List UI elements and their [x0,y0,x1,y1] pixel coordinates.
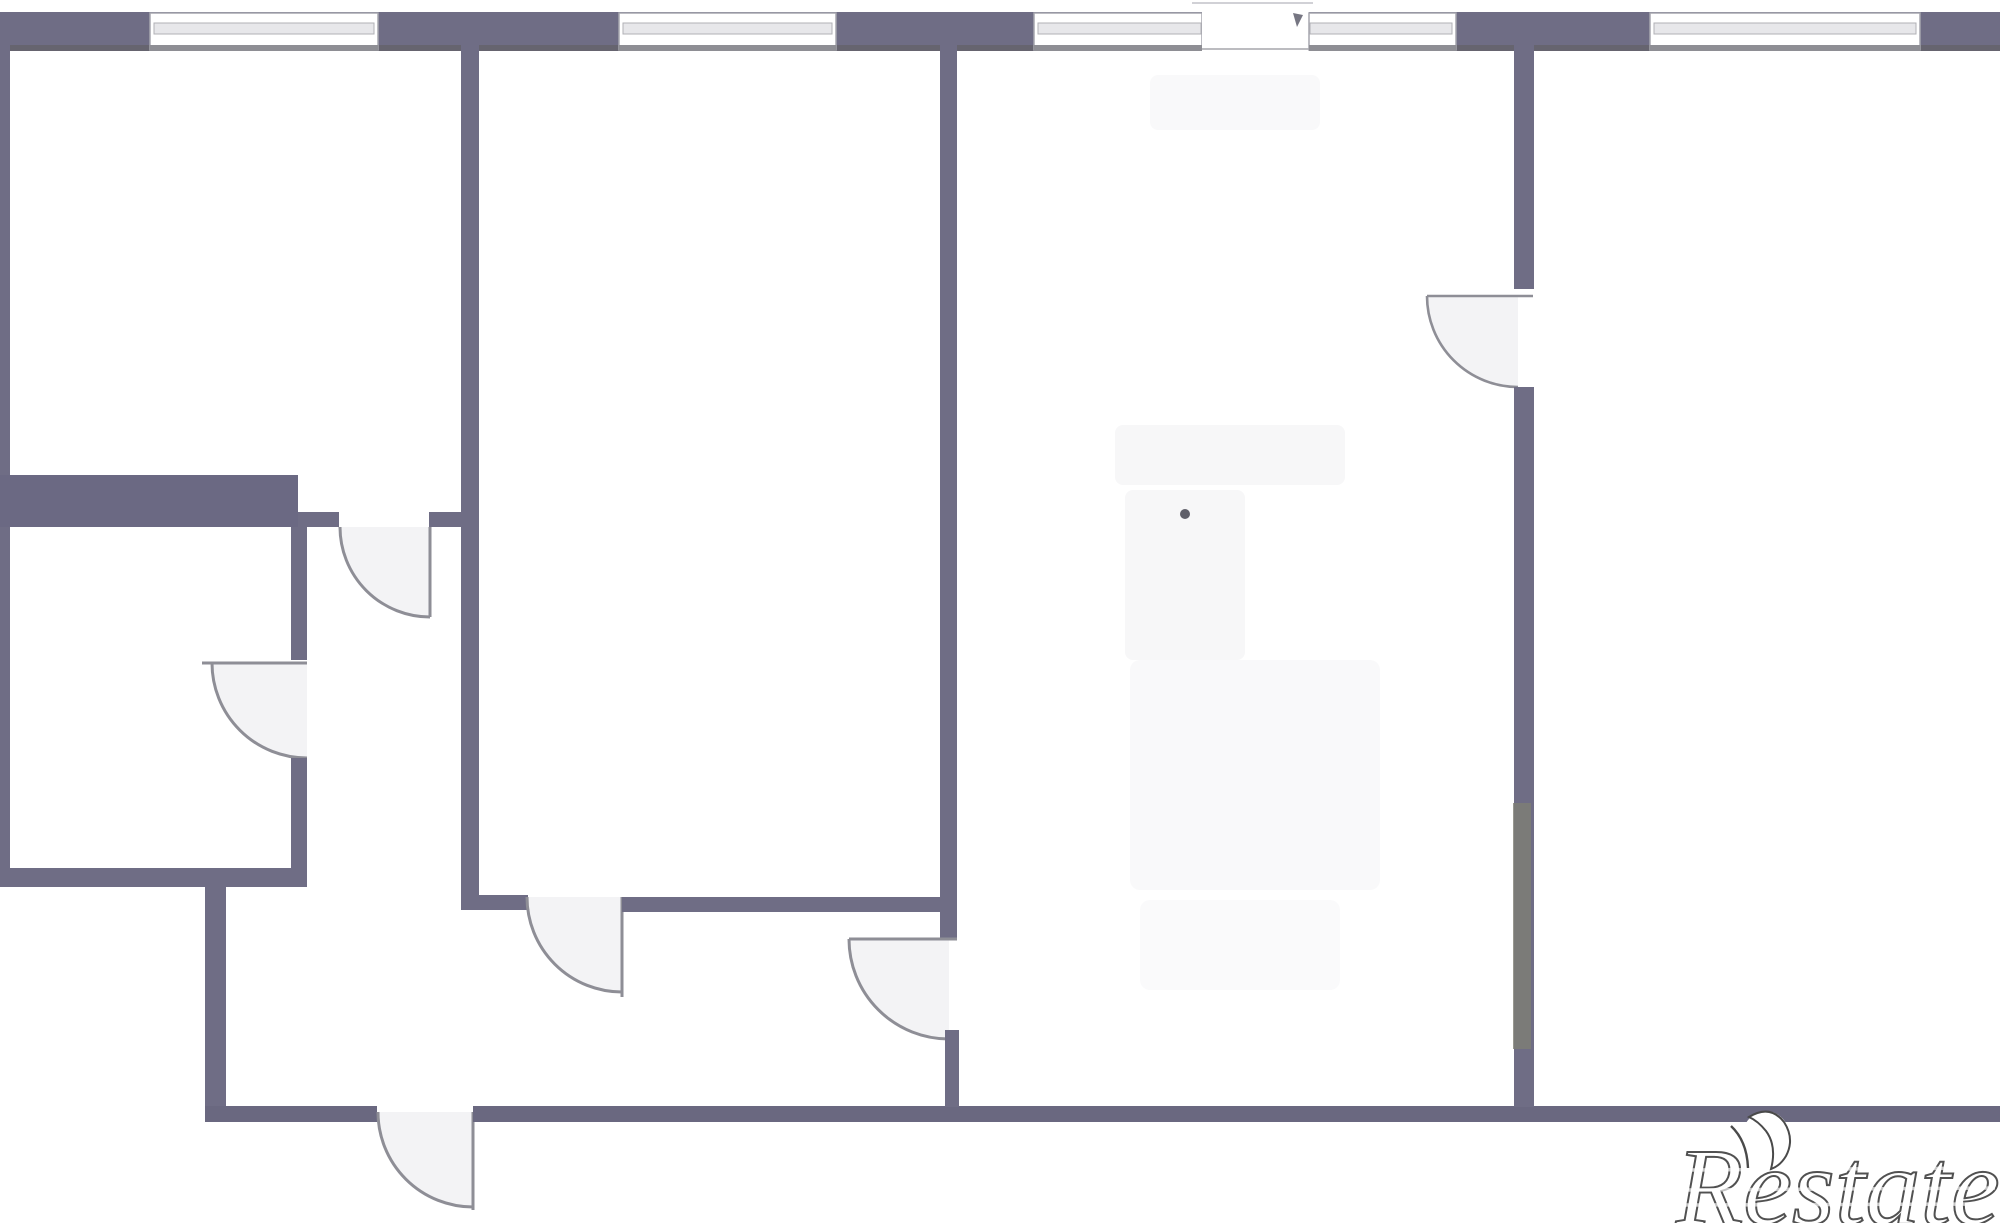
svg-text:Restate: Restate [1675,1126,2000,1223]
